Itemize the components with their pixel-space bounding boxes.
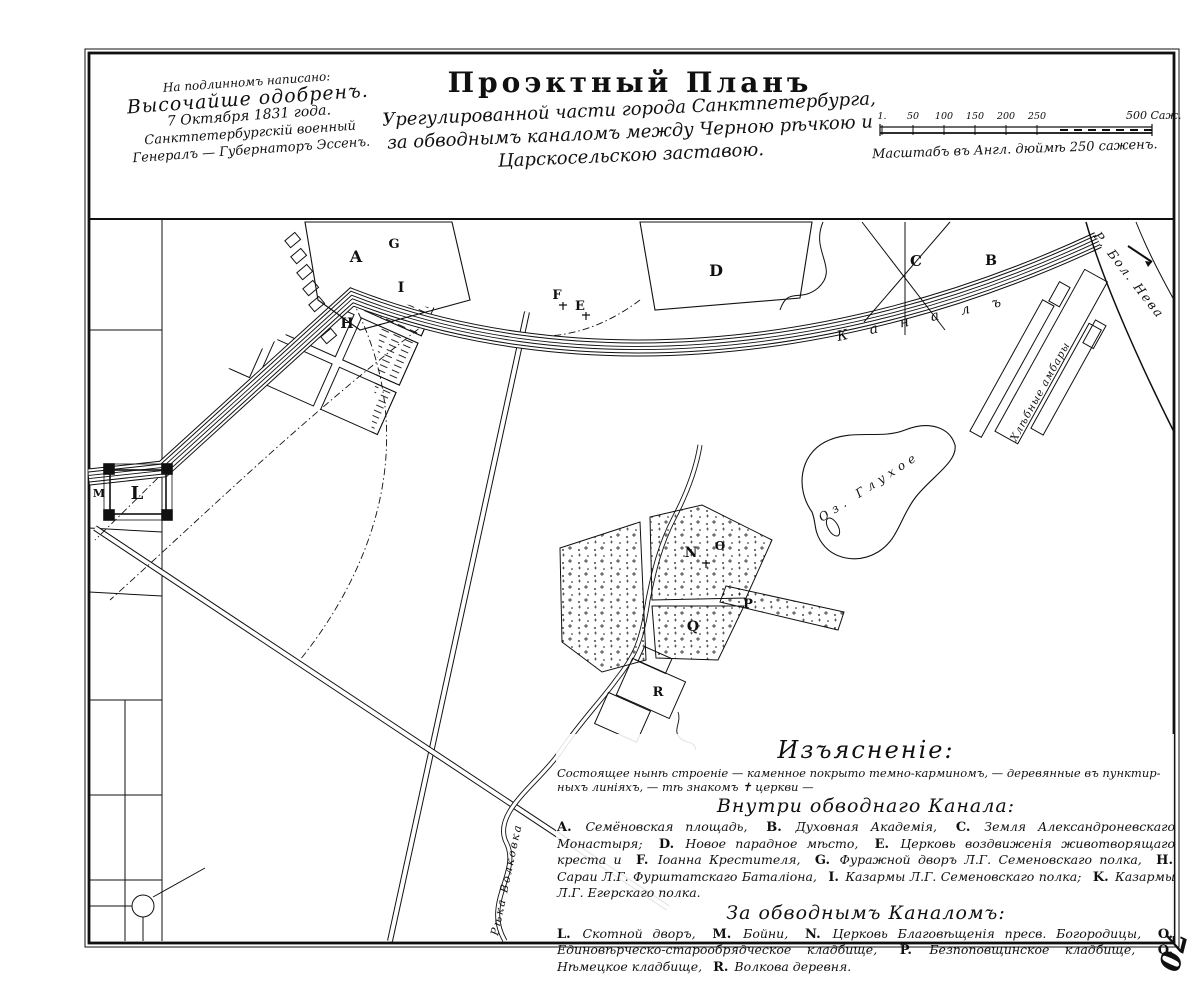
legend-item-letter: K. <box>1093 870 1111 885</box>
marker-R: R <box>653 685 664 700</box>
legend-item-letter: C. <box>956 820 973 835</box>
scale-bar: 1.50100150200250500 Саж. <box>877 109 1181 136</box>
black-stream <box>780 222 826 310</box>
cemeteries <box>560 505 844 672</box>
legend-item-text: Бойни, <box>733 926 805 941</box>
text-line: ныхъ линіяхъ, — тѣ знакомъ ✝ церкви — <box>557 780 1175 794</box>
legend-item-text: Безпоповщинское кладбище, <box>914 942 1158 957</box>
legend-item-letter: H. <box>1156 853 1175 868</box>
legend-item-letter: I. <box>828 870 841 885</box>
marker-Q: Q <box>687 619 699 635</box>
legend-item-letter: P. <box>900 943 914 958</box>
marker-F: F <box>552 288 562 303</box>
marker-N: N <box>685 545 698 561</box>
obvodny-canal <box>89 240 1098 477</box>
legend-item-letter: G. <box>815 853 832 868</box>
marker-L: L <box>131 483 144 504</box>
legend-header-beyond: За обводнымъ Каналомъ: <box>557 902 1175 924</box>
map-label: Р. Бол. Нева <box>1090 228 1168 322</box>
legend-item-letter: R. <box>713 960 730 975</box>
legend-item-text: Іоанна Крестителя, <box>650 852 814 867</box>
neva-river <box>1086 222 1174 432</box>
legend-item-letter: L. <box>557 927 573 942</box>
legend-note: Состоящее нынѣ строеніе — каменное покры… <box>557 766 1175 794</box>
legend-item-letter: E. <box>875 837 891 852</box>
marker-M: M <box>93 487 105 500</box>
marker-G: G <box>388 237 399 252</box>
legend-title: Изъясненіе: <box>557 736 1175 764</box>
left-strip <box>89 219 162 941</box>
legend-items-beyond: L. Скотной дворъ, M. Бойни, N. Церковь Б… <box>557 926 1175 976</box>
legend-items-inside: A. Семёновская площадь, B. Духовная Акад… <box>557 819 1175 901</box>
marker-P: P <box>743 597 753 612</box>
legend-item-text: Духовная Академія, <box>784 819 956 834</box>
legend-item-letter: D. <box>659 837 676 852</box>
plaza <box>89 868 205 941</box>
scale-end-label: 500 Саж. <box>1126 109 1181 122</box>
legend-item-text: Нѣмецкое кладбище, <box>557 959 713 974</box>
glukhoe-lake <box>802 426 955 559</box>
legend-item-text: Новое парадное мѣсто, <box>676 836 874 851</box>
marker-Ѳ: Ѳ <box>715 539 725 553</box>
marker-C: C <box>910 252 922 270</box>
legend: Изъясненіе: Состоящее нынѣ строеніе — ка… <box>557 736 1175 975</box>
legend-item-text: Церковь Благовѣщенія пресв. Богородицы, <box>823 926 1158 941</box>
scale-tick-label: 200 <box>996 111 1015 122</box>
legend-item-text: Сараи Л.Г. Фурштатскаго Баталіона, <box>557 869 828 884</box>
legend-item-letter: B. <box>766 820 784 835</box>
legend-item-letter: A. <box>557 820 574 835</box>
text-line: Состоящее нынѣ строеніе — каменное покры… <box>557 766 1175 780</box>
scale-tick-label: 250 <box>1027 111 1046 122</box>
scale-tick-label: 100 <box>935 111 953 122</box>
map-label: Хлѣбные амбары <box>1008 340 1073 444</box>
legend-item-letter: N. <box>805 927 823 942</box>
marker-H: H <box>340 316 353 332</box>
boundary-lines <box>95 300 640 660</box>
marker-I: I <box>398 280 405 296</box>
marker-E: E <box>575 299 585 314</box>
map-letter-markers: AGIHFEDCBMLNѲPQR <box>93 237 997 700</box>
legend-item-text: Единовѣрческо-старообрядческое кладбище, <box>557 942 900 957</box>
legend-item-text: Скотной дворъ, <box>573 926 713 941</box>
marker-A: A <box>349 247 363 266</box>
legend-item-letter: M. <box>712 927 733 942</box>
marker-B: B <box>985 253 997 269</box>
legend-item-text: Семёновская площадь, <box>574 819 767 834</box>
legend-item-text: Волкова деревня. <box>730 959 858 974</box>
legend-header-inside: Внутри обводнаго Канала: <box>557 795 1175 817</box>
legend-item-text: Фуражной дворъ Л.Г. Семеновскаго полка, <box>832 852 1156 867</box>
scale-tick-label: 150 <box>966 111 984 122</box>
legend-item-text: Казармы Л.Г. Семеновскаго полка; <box>841 869 1093 884</box>
legend-item-letter: F. <box>636 853 650 868</box>
map-sheet: 1.50100150200250500 Саж. К а н а л ъР. Б… <box>0 0 1200 996</box>
marker-D: D <box>709 261 723 280</box>
